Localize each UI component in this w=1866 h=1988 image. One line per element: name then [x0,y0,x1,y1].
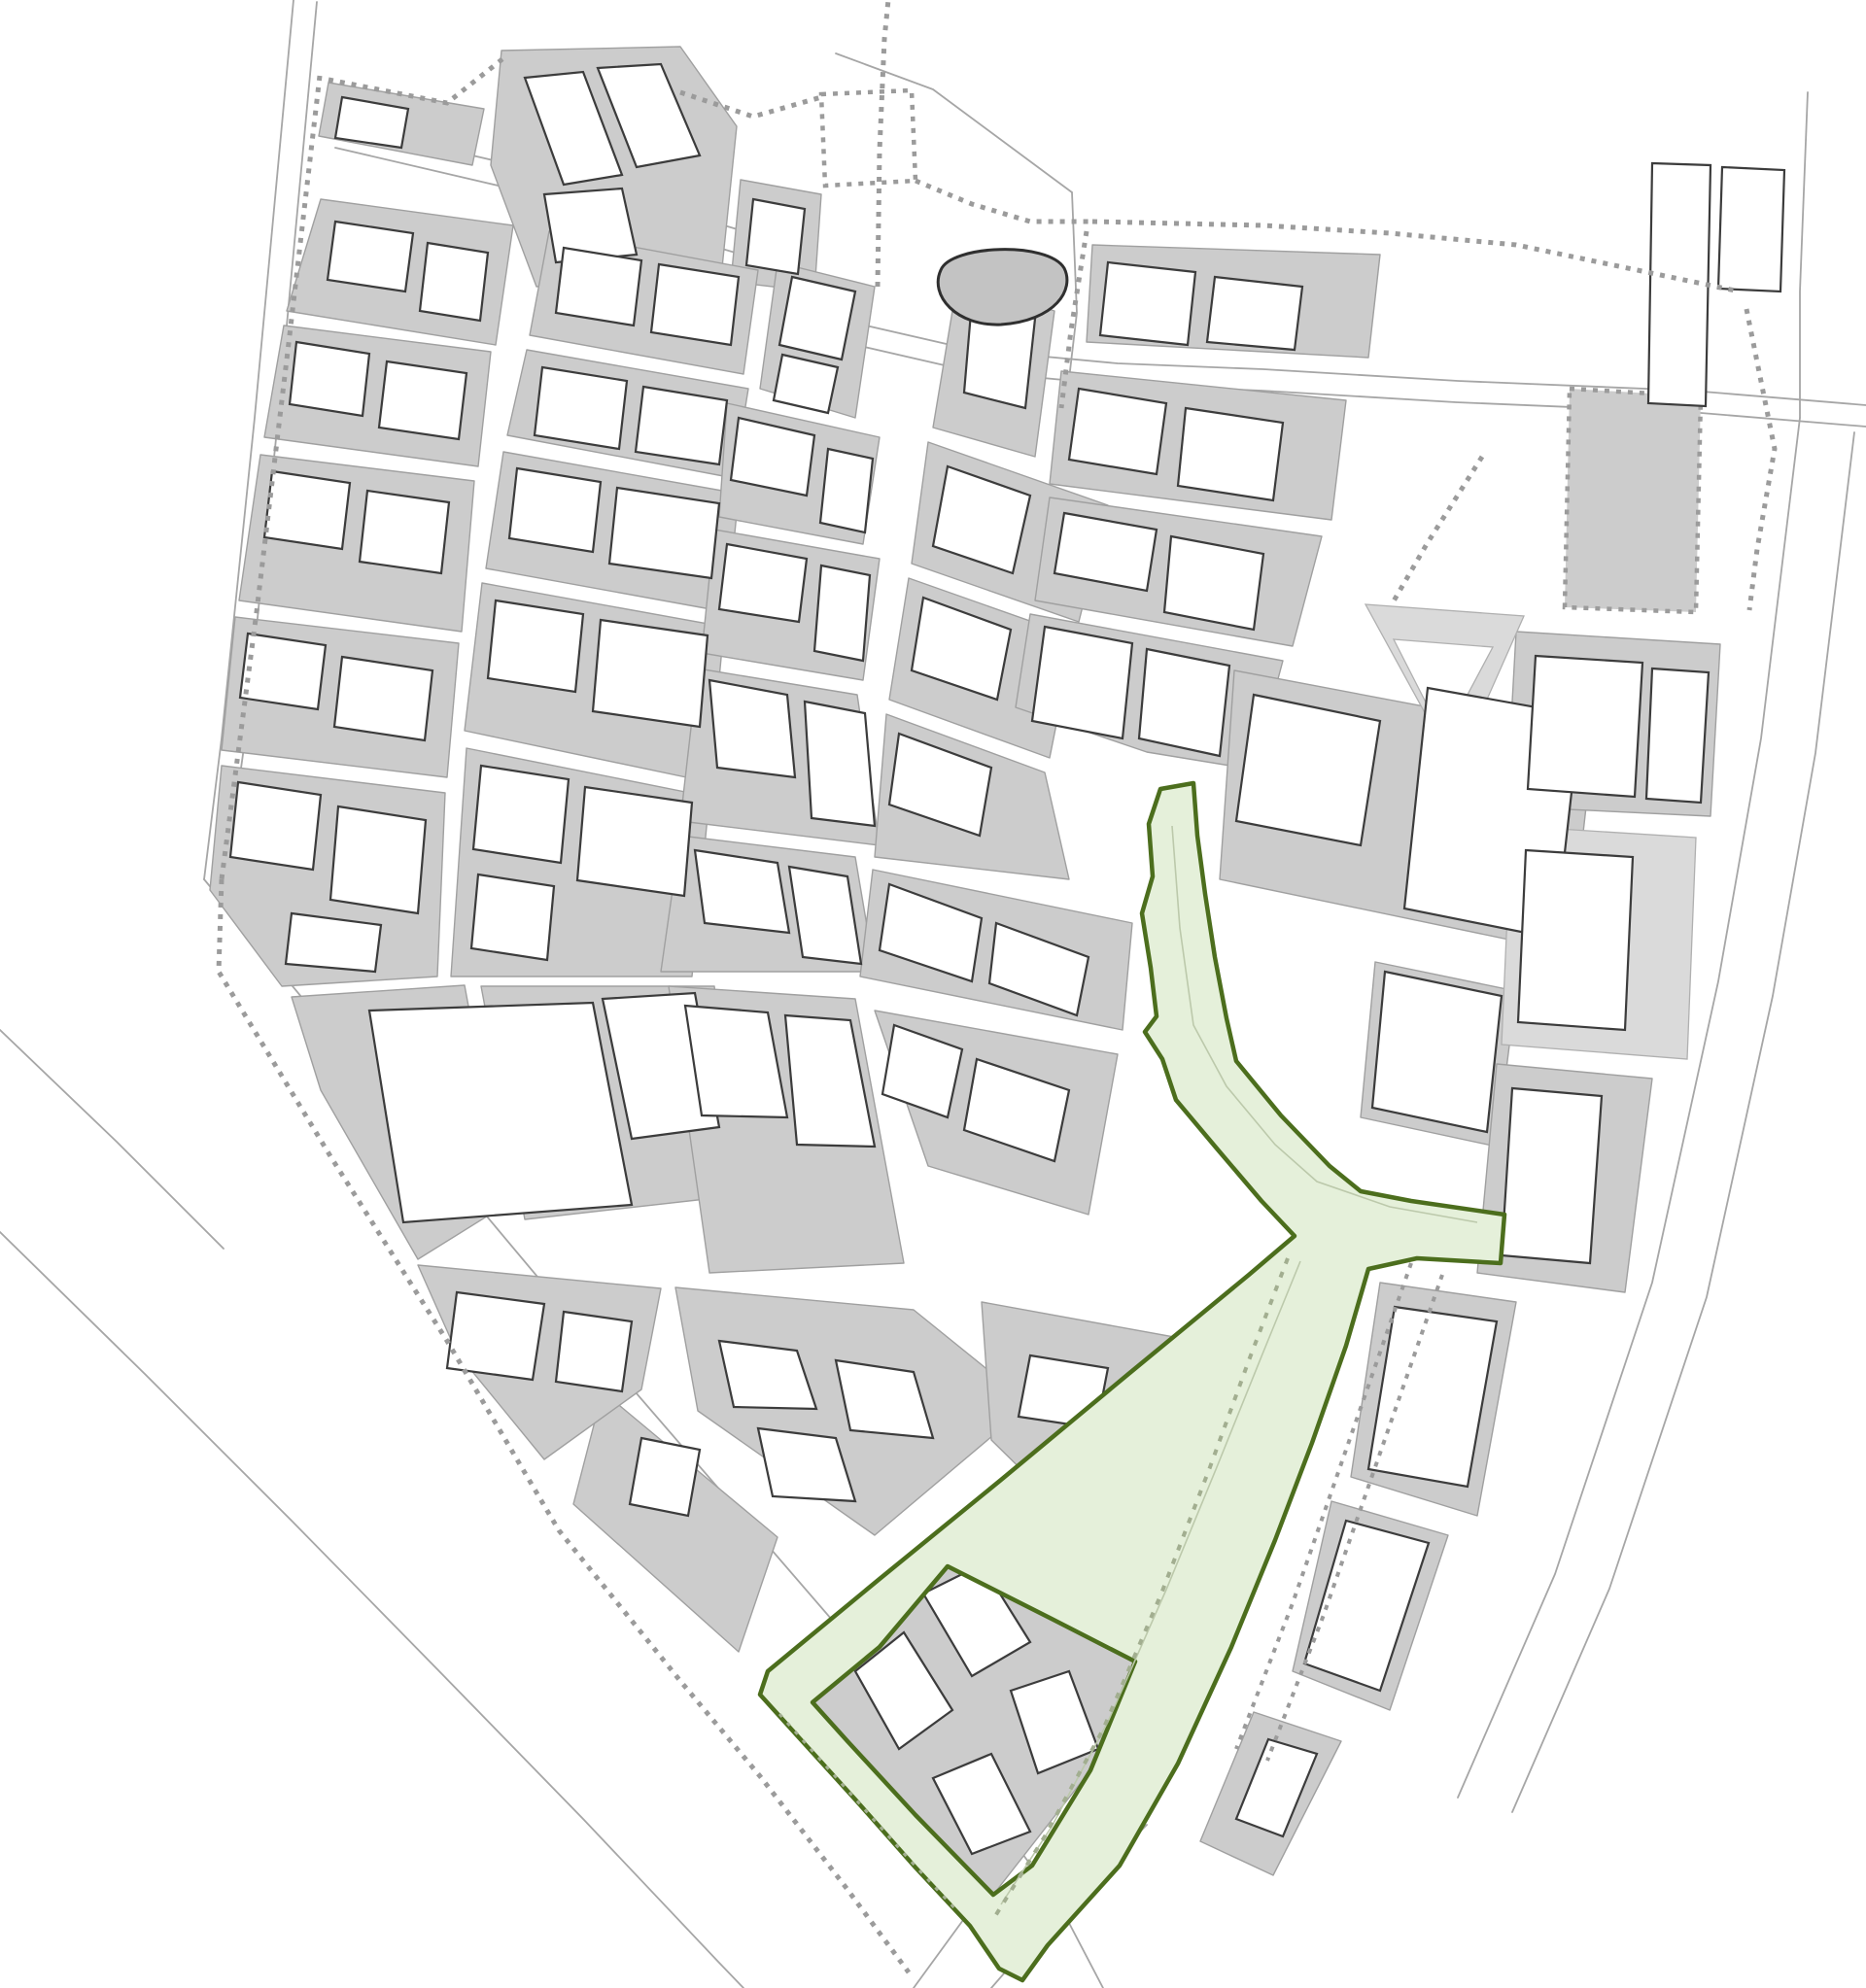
building [609,488,719,578]
building [695,850,789,933]
building [1069,389,1166,474]
building [779,277,855,360]
building [719,544,807,622]
building [1032,627,1132,738]
building [1518,850,1633,1030]
building [1100,262,1195,345]
building [535,367,627,449]
building [360,491,449,573]
building [420,243,488,321]
building [709,680,795,777]
building [473,766,569,863]
building [577,787,692,896]
building [1718,167,1784,291]
building [379,361,466,439]
building [746,199,805,274]
building [556,1312,632,1391]
building [805,702,875,826]
building [369,1003,632,1222]
building [556,248,641,326]
building [471,874,554,960]
city-map [0,0,1866,1988]
building [630,1438,700,1516]
map-canvas [0,0,1866,1988]
building [328,222,413,291]
building [230,782,321,870]
building [447,1292,544,1380]
building [1164,536,1263,630]
building [820,449,873,532]
building [264,471,350,549]
building [330,806,426,913]
building [1648,163,1710,406]
building [593,620,708,727]
building [1139,649,1229,756]
building [1646,668,1709,803]
building [1207,277,1302,350]
building [814,566,870,661]
building [636,387,727,464]
building [509,468,601,552]
building [334,657,432,740]
building [1236,695,1380,845]
building [1372,972,1502,1132]
building [1502,1088,1602,1263]
building [1528,656,1642,797]
building [651,264,739,345]
building [488,600,583,692]
building [1178,408,1283,500]
building [290,342,369,416]
walled-precinct-block [1565,389,1701,612]
building [286,913,381,972]
